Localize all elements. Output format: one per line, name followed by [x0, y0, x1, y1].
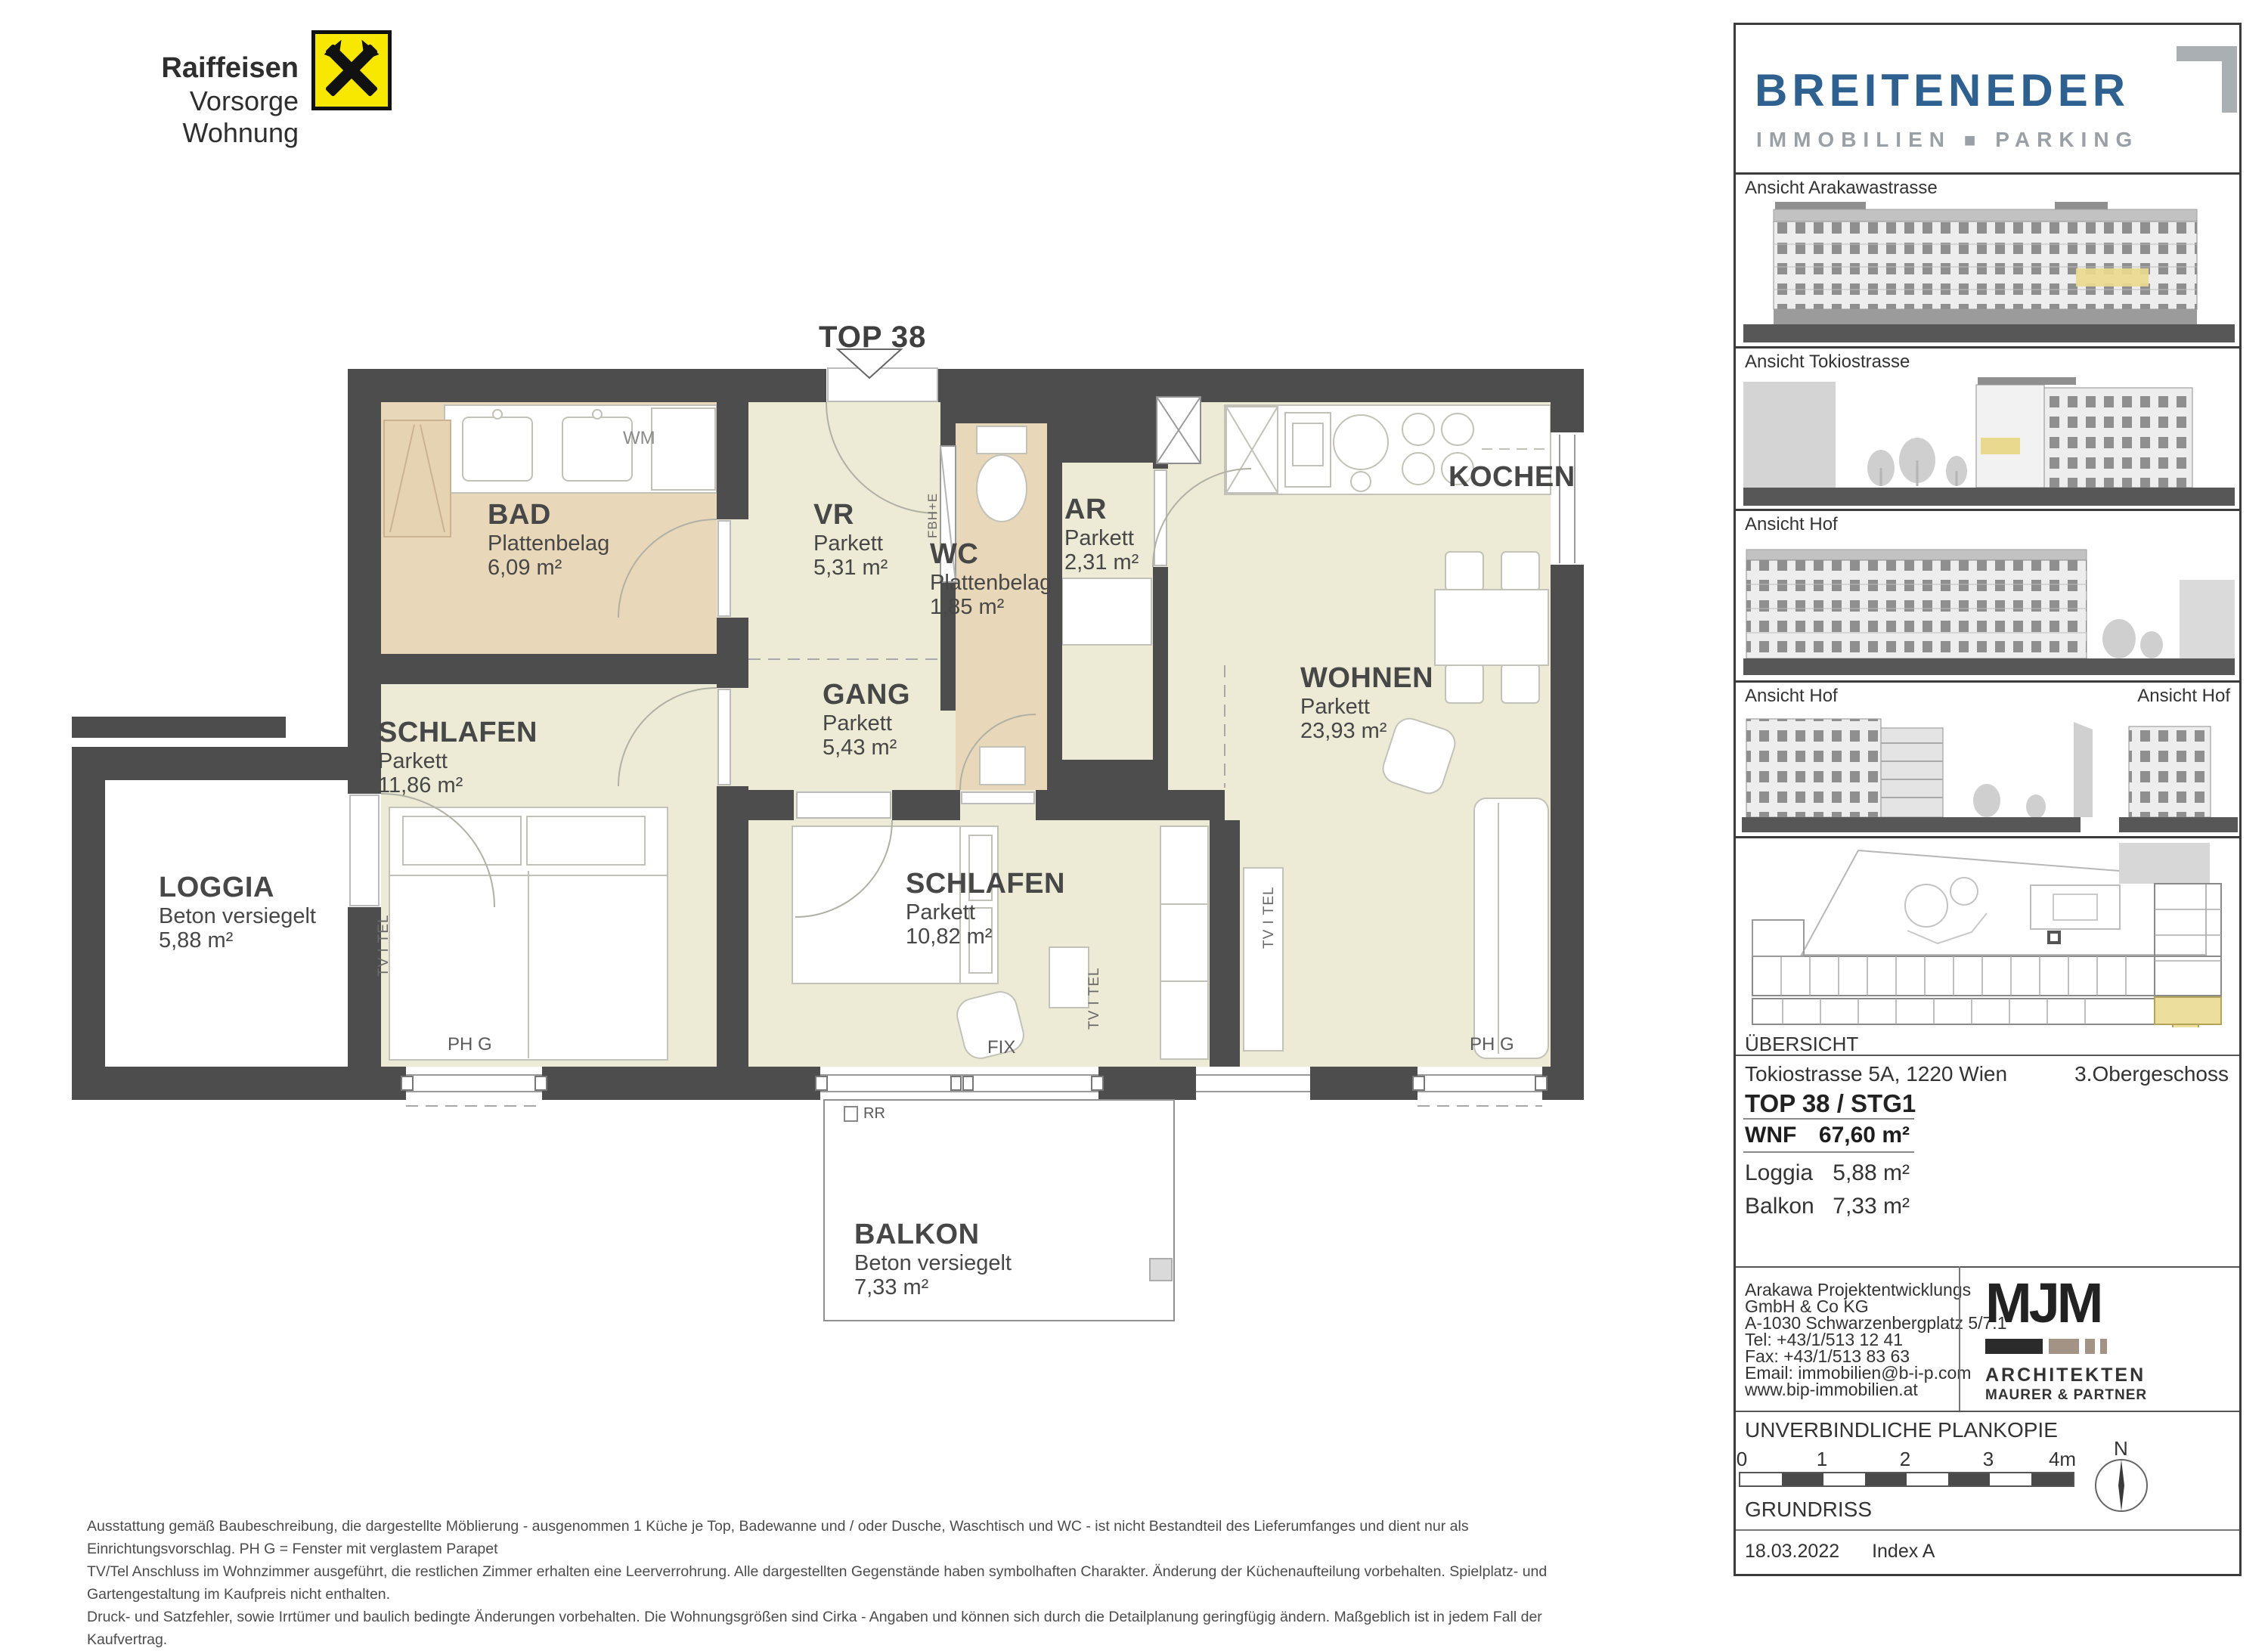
tv-tel-label-2: TV I TEL [1086, 967, 1103, 1030]
contact-line: Email: immobilien@b-i-p.com [1745, 1364, 2007, 1381]
metric-value: 7,33 m² [1833, 1194, 1910, 1219]
revision-date: 18.03.2022 [1745, 1541, 1839, 1562]
contact-line: A-1030 Schwarzenbergplatz 5/7.1 [1745, 1315, 2007, 1331]
scale-tick-4: 4m [2049, 1448, 2076, 1471]
elevation-hof-1 [1737, 534, 2239, 675]
room-floor: Plattenbelag [930, 571, 1052, 595]
disclaimer-line-2: TV/Tel Anschluss im Wohnzimmer ausgeführ… [87, 1560, 1569, 1606]
view-label-arakawastrasse: Ansicht Arakawastrasse [1745, 178, 1938, 199]
room-floor: Beton versiegelt [159, 904, 316, 928]
scale-bar [1739, 1472, 2074, 1487]
elevation-hof-2 [1737, 705, 2239, 832]
breiteneder-logo: BREITENEDER [1755, 64, 2130, 116]
floor-level: 3.Obergeschoss [2074, 1062, 2229, 1086]
room-name: SCHLAFEN [906, 868, 1065, 900]
room-label-loggia: LOGGIA Beton versiegelt 5,88 m² [159, 872, 316, 952]
scale-tick-3: 3 [1983, 1448, 1994, 1471]
room-floor: Plattenbelag [488, 531, 609, 556]
room-label-gang: GANG Parkett 5,43 m² [823, 679, 910, 760]
tagline-parking: PARKING [1995, 128, 2139, 151]
overview-label: ÜBERSICHT [1745, 1033, 1858, 1056]
room-name: SCHLAFEN [378, 717, 538, 749]
room-area: 23,93 m² [1300, 719, 1433, 743]
room-label-schlafen-1: SCHLAFEN Parkett 11,86 m² [378, 717, 538, 798]
window-phg-label-2: PH G [1470, 1034, 1514, 1055]
scale-tick-2: 2 [1900, 1448, 1910, 1471]
rr-label: RR [863, 1105, 885, 1123]
contact-line: Tel: +43/1/513 12 41 [1745, 1331, 2007, 1348]
view-label-hof-1: Ansicht Hof [1745, 514, 1838, 535]
tv-tel-label-3: TV I TEL [1261, 886, 1278, 949]
mjm-bar-icon [2100, 1339, 2107, 1354]
room-name: WC [930, 538, 1052, 571]
contact-line: Fax: +43/1/513 83 63 [1745, 1348, 2007, 1364]
metric-value: 5,88 m² [1833, 1160, 1910, 1186]
room-floor: Beton versiegelt [854, 1251, 1012, 1275]
tv-tel-label-1: TV I TEL [376, 914, 392, 977]
view-label-tokiostrasse: Ansicht Tokiostrasse [1745, 352, 1910, 373]
elevation-tokiostrasse [1737, 371, 2239, 506]
metric-wnf: WNF 67,60 m² [1745, 1123, 1910, 1148]
architect-logo: MJM [1985, 1271, 2100, 1335]
room-area: 7,33 m² [854, 1275, 1012, 1299]
contact-line: www.bip-immobilien.at [1745, 1381, 2007, 1398]
room-label-kochen: KOCHEN [1448, 461, 1576, 494]
room-label-bad: BAD Plattenbelag 6,09 m² [488, 499, 609, 580]
room-area: 10,82 m² [906, 925, 1065, 949]
revision-index: Index A [1872, 1541, 1935, 1562]
room-floor: Parkett [813, 531, 888, 556]
view-label-hof-3: Ansicht Hof [2137, 686, 2230, 707]
room-floor: Parkett [823, 711, 910, 736]
site-plan [1737, 841, 2239, 1027]
metric-label: WNF [1745, 1123, 1796, 1148]
window-fix-label: FIX [987, 1037, 1015, 1058]
room-floor: Parkett [378, 749, 538, 773]
metric-label: Balkon [1745, 1194, 1814, 1219]
washing-machine-label: WM [623, 428, 655, 449]
room-name: VR [813, 499, 888, 531]
shaft [1157, 397, 1201, 463]
metric-label: Loggia [1745, 1160, 1813, 1186]
room-floor: Parkett [1064, 526, 1139, 550]
metric-loggia: Loggia 5,88 m² [1745, 1160, 1910, 1186]
room-area: 5,31 m² [813, 556, 888, 580]
room-label-schlafen-2: SCHLAFEN Parkett 10,82 m² [906, 868, 1065, 949]
contact-line: Arakawa Projektentwicklungs [1745, 1281, 2007, 1298]
room-name: GANG [823, 679, 910, 711]
window-phg-label-1: PH G [448, 1034, 492, 1055]
architect-line2: MAURER & PARTNER [1985, 1387, 2147, 1404]
room-label-wc: WC Plattenbelag 1,85 m² [930, 538, 1052, 619]
developer-contact: Arakawa Projektentwicklungs GmbH & Co KG… [1745, 1281, 2007, 1398]
room-name: KOCHEN [1448, 461, 1576, 494]
mjm-bar-icon [1985, 1339, 2043, 1354]
revision-row: 18.03.2022 Index A [1745, 1541, 1962, 1563]
scale-tick-1: 1 [1817, 1448, 1827, 1471]
contact-line: GmbH & Co KG [1745, 1298, 2007, 1315]
breiteneder-tagline: IMMOBILIEN ■ PARKING [1756, 128, 2139, 152]
room-name: WOHNEN [1300, 662, 1433, 695]
room-area: 2,31 m² [1064, 550, 1139, 575]
unit-callout: TOP 38 [819, 321, 926, 355]
room-label-balkon: BALKON Beton versiegelt 7,33 m² [854, 1219, 1012, 1299]
metric-value: 67,60 m² [1819, 1123, 1910, 1148]
square-separator-icon: ■ [1964, 129, 1983, 151]
room-area: 6,09 m² [488, 556, 609, 580]
scale-tick-0: 0 [1737, 1448, 1747, 1471]
logo-bracket-icon [2222, 46, 2237, 113]
disclaimer-text: Ausstattung gemäß Baubeschreibung, die d… [87, 1515, 1569, 1651]
room-area: 1,85 m² [930, 595, 1052, 619]
architect-line1: ARCHITEKTEN [1985, 1364, 2146, 1386]
room-area: 11,86 m² [378, 773, 538, 798]
room-floor: Parkett [906, 900, 1065, 925]
mjm-bar-icon [2049, 1339, 2079, 1354]
room-label-ar: AR Parkett 2,31 m² [1064, 494, 1139, 575]
north-compass-icon [2093, 1457, 2150, 1514]
room-label-vr: VR Parkett 5,31 m² [813, 499, 888, 580]
unit-title: TOP 38 / STG1 [1745, 1089, 1916, 1118]
view-label-hof-2: Ansicht Hof [1745, 686, 1838, 707]
title-block-sidebar: BREITENEDER IMMOBILIEN ■ PARKING Ansicht… [1734, 23, 2242, 1576]
disclaimer-line-1: Ausstattung gemäß Baubeschreibung, die d… [87, 1515, 1569, 1560]
drawing-type: GRUNDRISS [1745, 1498, 1872, 1522]
room-area: 5,43 m² [823, 736, 910, 760]
elevation-arakawastrasse [1737, 197, 2239, 345]
room-area: 5,88 m² [159, 928, 316, 952]
room-label-wohnen: WOHNEN Parkett 23,93 m² [1300, 662, 1433, 743]
floorplan-document: { "branding": { "raiffeisen_line1": "Rai… [0, 0, 2268, 1603]
disclaimer-line-3: Druck- und Satzfehler, sowie Irrtümer un… [87, 1606, 1569, 1651]
fbh-e-label: FBH+E [925, 493, 940, 538]
room-floor: Parkett [1300, 695, 1433, 719]
room-name: BALKON [854, 1219, 1012, 1251]
room-name: AR [1064, 494, 1139, 526]
room-name: LOGGIA [159, 872, 316, 904]
project-address: Tokiostrasse 5A, 1220 Wien [1745, 1062, 2007, 1086]
metric-balkon: Balkon 7,33 m² [1745, 1194, 1910, 1219]
room-name: BAD [488, 499, 609, 531]
mjm-bar-icon [2085, 1339, 2095, 1354]
tagline-immobilien: IMMOBILIEN [1756, 128, 1951, 151]
plan-copy-note: UNVERBINDLICHE PLANKOPIE [1745, 1418, 2058, 1442]
